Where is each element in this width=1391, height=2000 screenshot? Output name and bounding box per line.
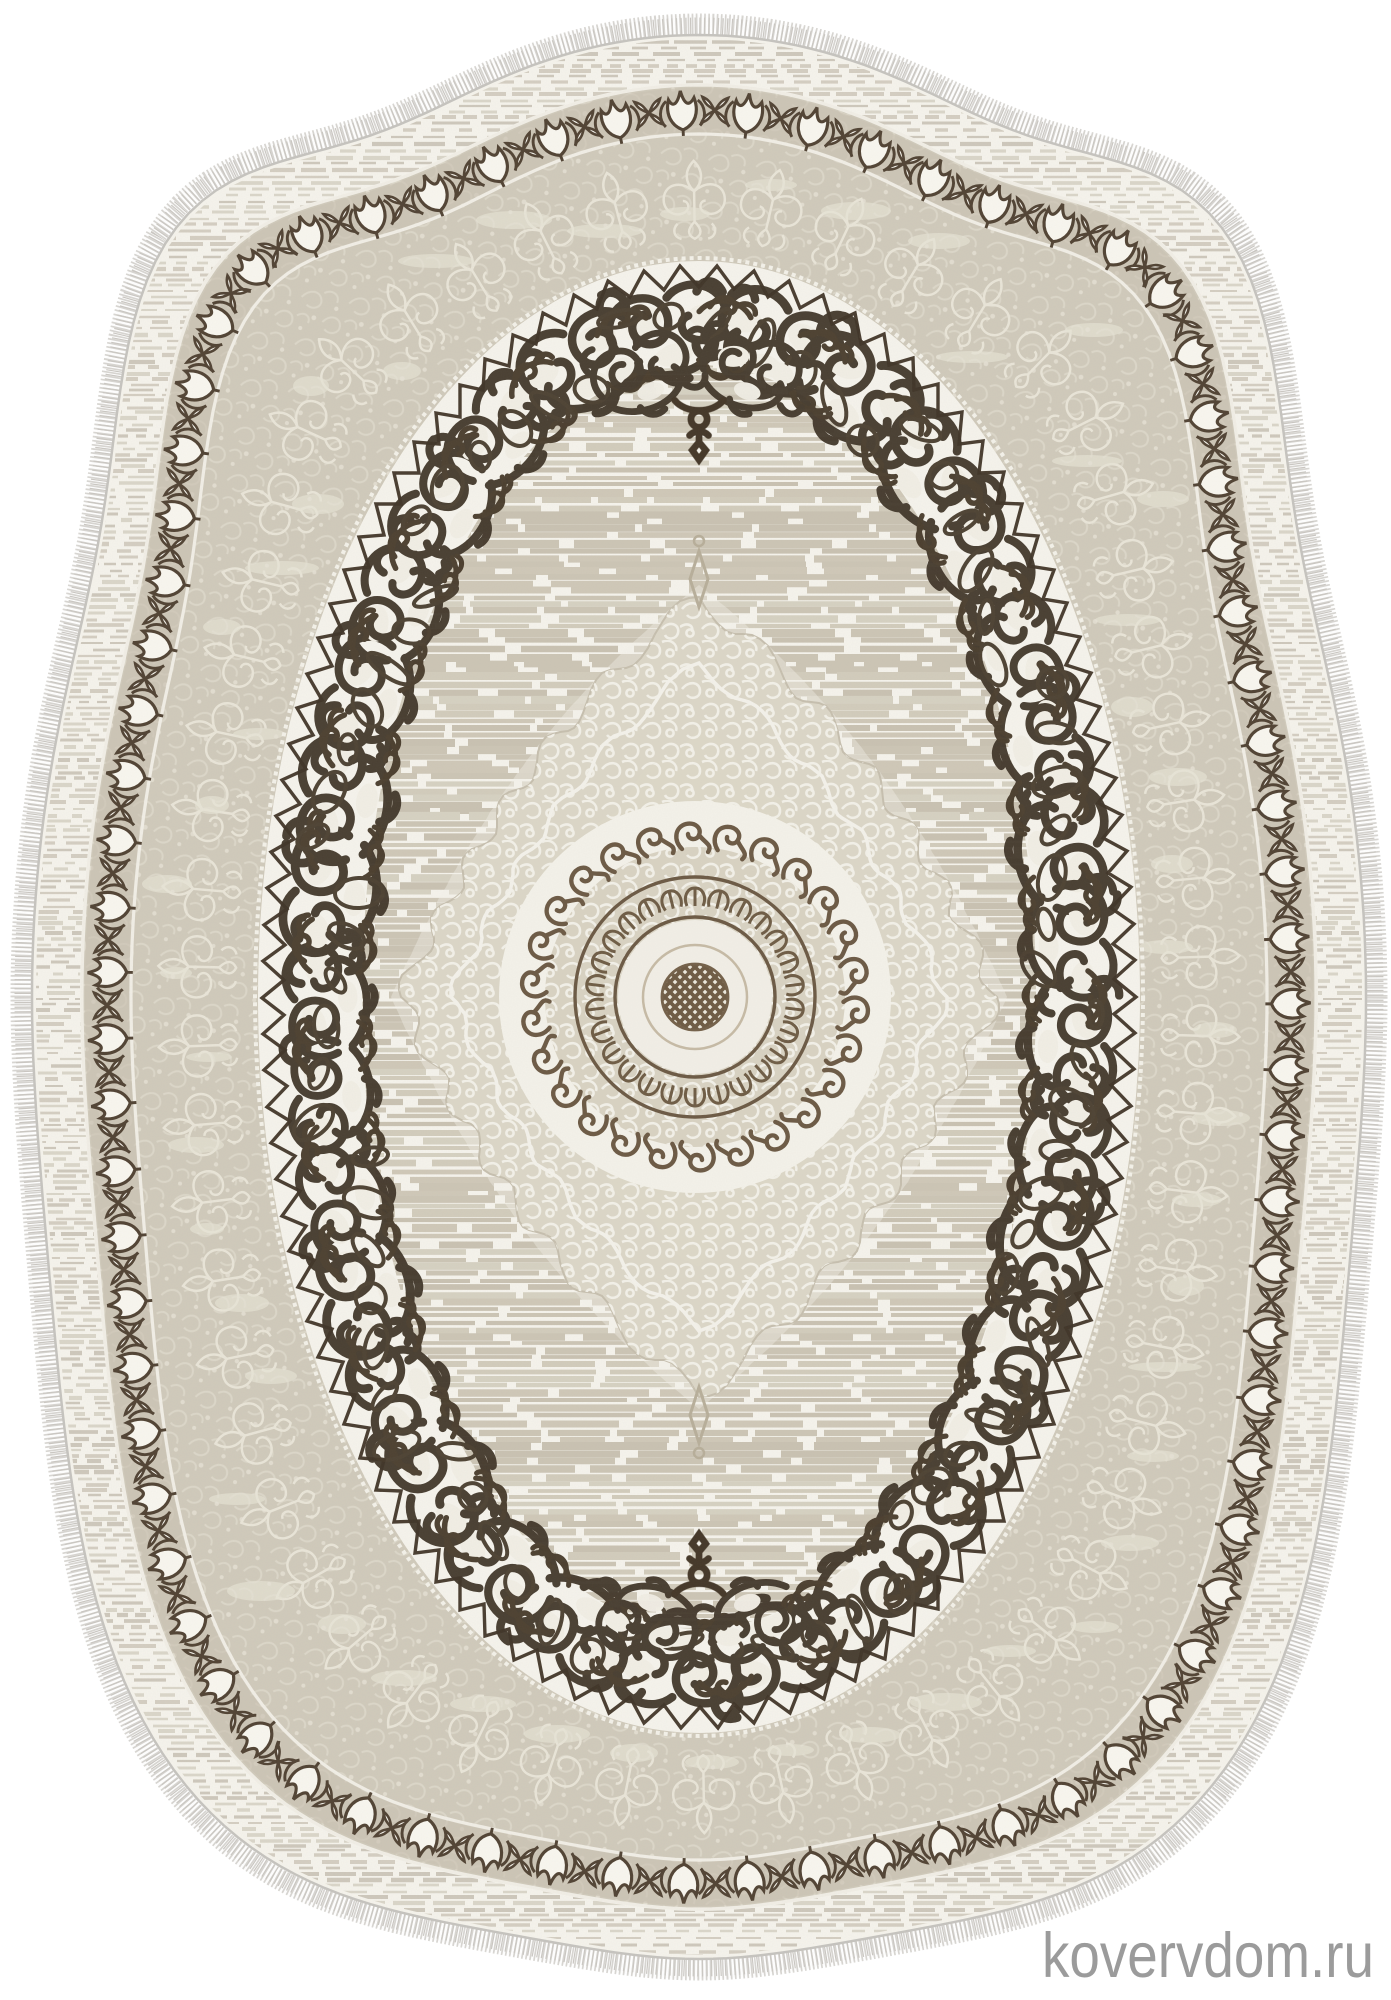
svg-text:kovervdom.ru: kovervdom.ru [1042, 1921, 1374, 1991]
